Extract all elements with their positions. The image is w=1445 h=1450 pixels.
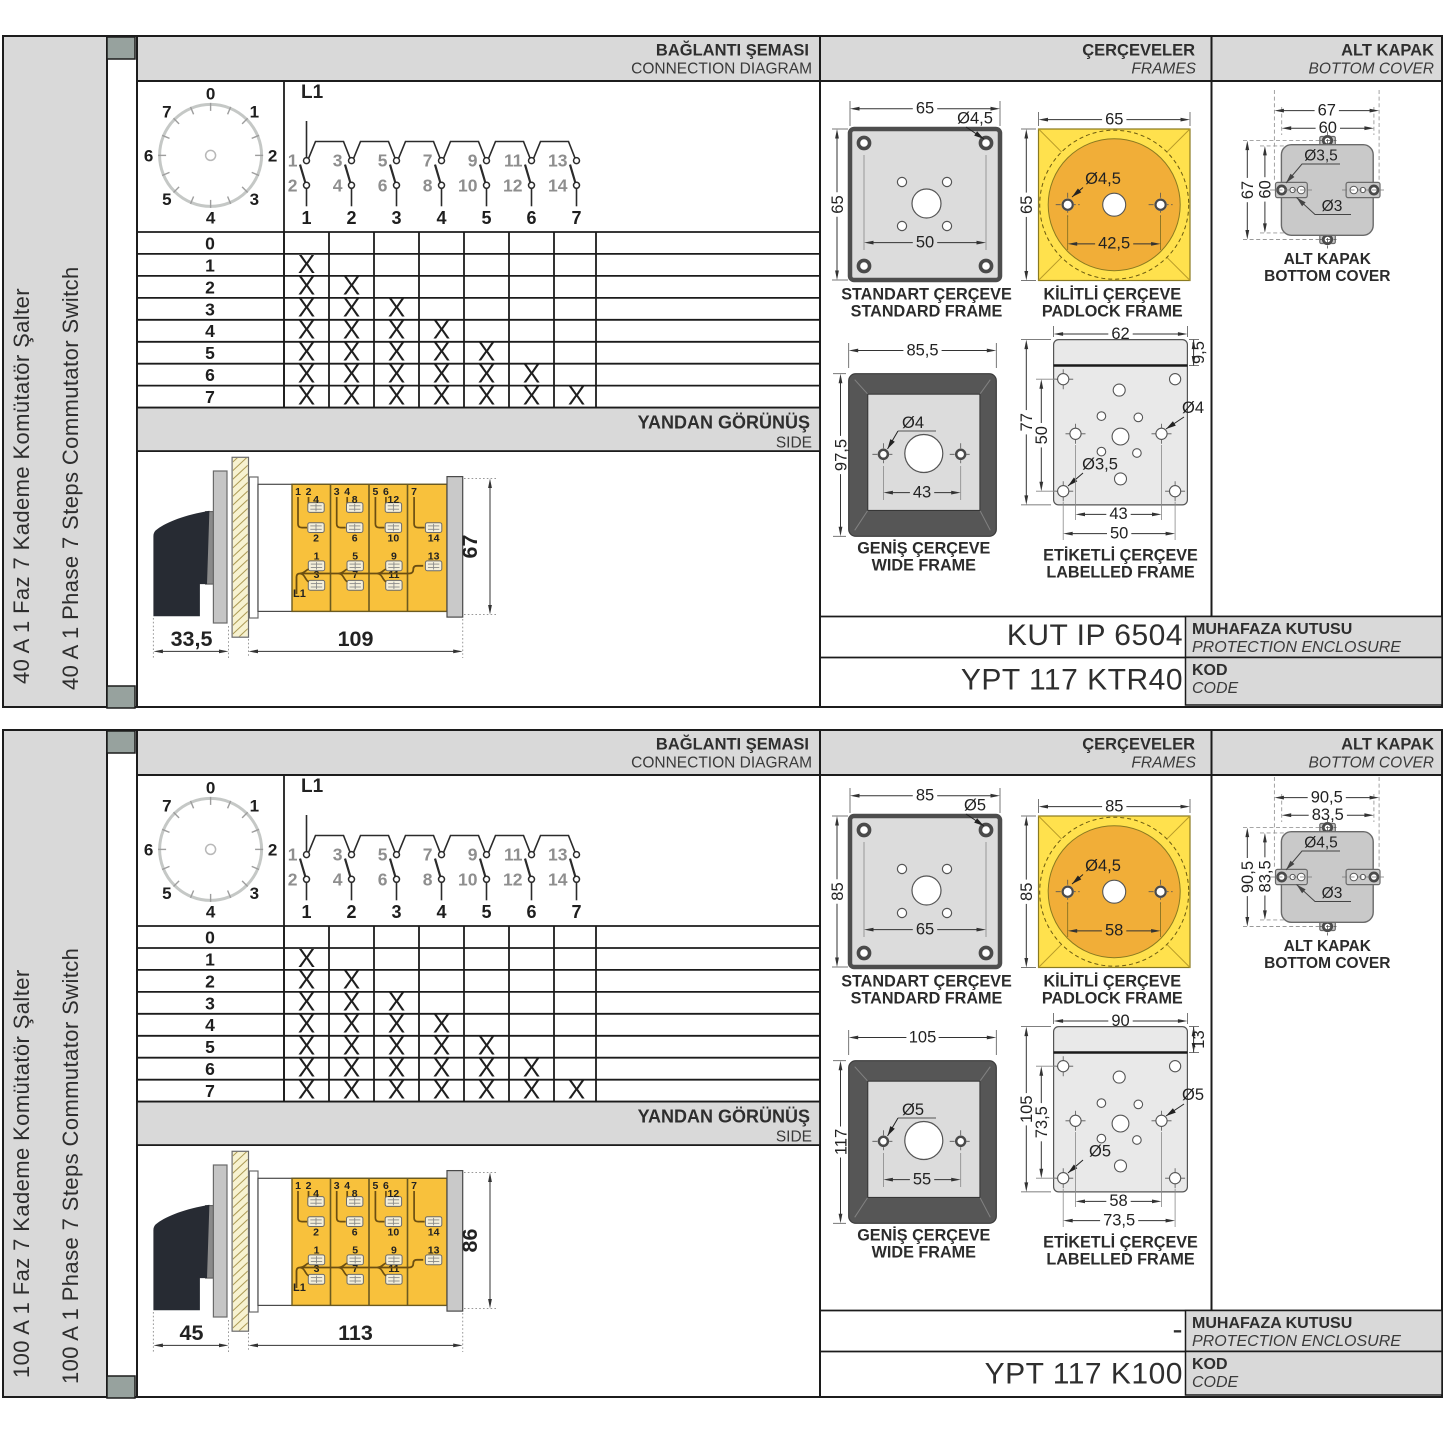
svg-text:4: 4 bbox=[205, 1015, 215, 1035]
svg-text:5: 5 bbox=[205, 1037, 215, 1057]
svg-text:12: 12 bbox=[388, 494, 400, 506]
svg-text:100 A 1 Faz 7 Kademe Komütatör: 100 A 1 Faz 7 Kademe Komütatör Şalter bbox=[9, 969, 34, 1378]
svg-text:9,5: 9,5 bbox=[1190, 341, 1208, 364]
svg-text:85: 85 bbox=[916, 787, 934, 805]
svg-text:Ø5: Ø5 bbox=[1182, 1086, 1204, 1104]
svg-text:CONNECTION DIAGRAM: CONNECTION DIAGRAM bbox=[631, 755, 812, 772]
svg-text:85: 85 bbox=[829, 882, 847, 900]
svg-text:-: - bbox=[1173, 1313, 1184, 1346]
svg-text:1: 1 bbox=[295, 1180, 301, 1192]
svg-text:1: 1 bbox=[314, 1245, 320, 1257]
svg-text:Ø3: Ø3 bbox=[1322, 198, 1343, 215]
svg-text:L1: L1 bbox=[301, 82, 324, 103]
svg-text:85: 85 bbox=[1018, 883, 1036, 901]
svg-text:5: 5 bbox=[481, 208, 491, 228]
svg-text:Ø3: Ø3 bbox=[1322, 885, 1343, 902]
svg-text:14: 14 bbox=[428, 533, 440, 545]
svg-text:CODE: CODE bbox=[1192, 680, 1239, 697]
svg-text:PADLOCK FRAME: PADLOCK FRAME bbox=[1042, 303, 1183, 321]
svg-text:Ø4,5: Ø4,5 bbox=[1085, 170, 1121, 188]
svg-text:109: 109 bbox=[338, 627, 374, 651]
svg-text:YANDAN GÖRÜNÜŞ: YANDAN GÖRÜNÜŞ bbox=[638, 413, 810, 433]
svg-text:MUHAFAZA KUTUSU: MUHAFAZA KUTUSU bbox=[1192, 1315, 1352, 1332]
svg-text:Ø5: Ø5 bbox=[902, 1101, 924, 1119]
svg-text:4: 4 bbox=[206, 208, 216, 227]
svg-text:X: X bbox=[433, 1075, 450, 1105]
svg-text:9: 9 bbox=[468, 151, 478, 171]
svg-text:PROTECTION ENCLOSURE: PROTECTION ENCLOSURE bbox=[1192, 1333, 1401, 1350]
svg-text:X: X bbox=[478, 1075, 495, 1105]
svg-text:6: 6 bbox=[352, 533, 358, 545]
svg-text:4: 4 bbox=[333, 869, 343, 889]
svg-text:5: 5 bbox=[352, 551, 358, 563]
svg-text:4: 4 bbox=[436, 208, 446, 228]
svg-text:3: 3 bbox=[333, 151, 343, 171]
svg-text:X: X bbox=[478, 380, 495, 410]
svg-text:Ø3,5: Ø3,5 bbox=[1304, 148, 1338, 165]
svg-text:1: 1 bbox=[288, 151, 298, 171]
svg-text:ALT KAPAK: ALT KAPAK bbox=[1284, 938, 1372, 955]
svg-text:85: 85 bbox=[1105, 797, 1123, 815]
svg-text:10: 10 bbox=[458, 175, 478, 195]
svg-text:X: X bbox=[343, 380, 360, 410]
svg-text:6: 6 bbox=[144, 146, 153, 165]
svg-text:90: 90 bbox=[1111, 1012, 1129, 1030]
svg-text:58: 58 bbox=[1109, 1192, 1127, 1210]
svg-text:Ø4: Ø4 bbox=[902, 414, 924, 432]
svg-text:X: X bbox=[388, 1075, 405, 1105]
svg-text:13: 13 bbox=[548, 151, 568, 171]
svg-text:STANDARD FRAME: STANDARD FRAME bbox=[851, 303, 1003, 321]
svg-text:KİLİTLİ ÇERÇEVE: KİLİTLİ ÇERÇEVE bbox=[1043, 286, 1181, 304]
svg-text:62: 62 bbox=[1111, 325, 1129, 343]
svg-text:YPT 117 K100: YPT 117 K100 bbox=[985, 1358, 1183, 1391]
svg-text:4: 4 bbox=[313, 1188, 319, 1200]
svg-text:14: 14 bbox=[428, 1227, 440, 1239]
svg-text:7: 7 bbox=[411, 486, 417, 498]
svg-text:11: 11 bbox=[388, 569, 399, 581]
svg-text:6: 6 bbox=[352, 1227, 358, 1239]
svg-text:67: 67 bbox=[458, 535, 482, 559]
svg-text:13: 13 bbox=[428, 551, 440, 563]
svg-text:7: 7 bbox=[352, 569, 358, 581]
svg-text:11: 11 bbox=[388, 1263, 399, 1275]
svg-text:2: 2 bbox=[313, 1227, 319, 1239]
svg-text:4: 4 bbox=[333, 175, 343, 195]
svg-text:50: 50 bbox=[1110, 524, 1128, 542]
svg-text:45: 45 bbox=[180, 1321, 204, 1345]
svg-text:5: 5 bbox=[162, 884, 171, 903]
svg-text:2: 2 bbox=[268, 146, 277, 165]
svg-text:40 A 1 Phase 7 Steps Commutato: 40 A 1 Phase 7 Steps Commutator Switch bbox=[58, 266, 83, 690]
svg-text:1: 1 bbox=[301, 902, 311, 922]
svg-text:7: 7 bbox=[162, 797, 171, 816]
svg-text:85,5: 85,5 bbox=[906, 341, 938, 359]
svg-text:13: 13 bbox=[428, 1245, 440, 1257]
svg-text:BAĞLANTI ŞEMASI: BAĞLANTI ŞEMASI bbox=[656, 41, 809, 60]
svg-text:9: 9 bbox=[391, 551, 397, 563]
svg-text:YANDAN GÖRÜNÜŞ: YANDAN GÖRÜNÜŞ bbox=[638, 1107, 810, 1127]
svg-text:3: 3 bbox=[314, 569, 320, 581]
svg-text:1: 1 bbox=[250, 797, 259, 816]
svg-text:WIDE FRAME: WIDE FRAME bbox=[872, 557, 977, 575]
svg-text:3: 3 bbox=[333, 845, 343, 865]
svg-text:50: 50 bbox=[916, 233, 934, 251]
svg-text:ÇERÇEVELER: ÇERÇEVELER bbox=[1082, 42, 1195, 60]
svg-text:12: 12 bbox=[388, 1188, 400, 1200]
svg-text:4: 4 bbox=[313, 494, 319, 506]
svg-text:10: 10 bbox=[388, 1227, 400, 1239]
svg-text:X: X bbox=[343, 1075, 360, 1105]
svg-text:5: 5 bbox=[481, 902, 491, 922]
svg-text:33,5: 33,5 bbox=[171, 627, 213, 651]
svg-text:LABELLED FRAME: LABELLED FRAME bbox=[1046, 564, 1195, 582]
svg-text:7: 7 bbox=[571, 902, 581, 922]
svg-text:L1: L1 bbox=[293, 588, 306, 600]
svg-text:STANDART ÇERÇEVE: STANDART ÇERÇEVE bbox=[841, 286, 1012, 304]
svg-text:13: 13 bbox=[548, 845, 568, 865]
svg-text:Ø5: Ø5 bbox=[964, 797, 986, 815]
svg-text:YPT 117 KTR40: YPT 117 KTR40 bbox=[961, 664, 1183, 697]
svg-text:90,5: 90,5 bbox=[1239, 861, 1257, 893]
svg-text:2: 2 bbox=[306, 486, 312, 498]
svg-text:BAĞLANTI ŞEMASI: BAĞLANTI ŞEMASI bbox=[656, 735, 809, 754]
svg-text:5: 5 bbox=[378, 151, 388, 171]
svg-text:65: 65 bbox=[916, 100, 934, 118]
svg-text:LABELLED FRAME: LABELLED FRAME bbox=[1046, 1251, 1195, 1269]
svg-text:5: 5 bbox=[205, 343, 215, 363]
svg-text:100 A 1 Phase 7 Steps Commutat: 100 A 1 Phase 7 Steps Commutator Switch bbox=[58, 948, 83, 1384]
svg-text:6: 6 bbox=[205, 1059, 215, 1079]
svg-text:3: 3 bbox=[391, 902, 401, 922]
svg-text:86: 86 bbox=[458, 1229, 482, 1253]
svg-text:8: 8 bbox=[352, 1188, 358, 1200]
svg-text:4: 4 bbox=[344, 486, 350, 498]
svg-text:6: 6 bbox=[378, 175, 388, 195]
svg-text:97,5: 97,5 bbox=[832, 439, 850, 471]
svg-text:11: 11 bbox=[504, 845, 523, 865]
svg-text:X: X bbox=[388, 380, 405, 410]
svg-text:2: 2 bbox=[288, 869, 298, 889]
svg-text:0: 0 bbox=[205, 927, 215, 947]
svg-text:X: X bbox=[523, 380, 540, 410]
svg-text:1: 1 bbox=[205, 255, 215, 275]
svg-text:7: 7 bbox=[205, 1081, 215, 1101]
svg-text:KOD: KOD bbox=[1192, 662, 1228, 679]
svg-text:13: 13 bbox=[1190, 1030, 1208, 1048]
svg-text:6: 6 bbox=[526, 902, 536, 922]
svg-text:ÇERÇEVELER: ÇERÇEVELER bbox=[1082, 736, 1195, 754]
svg-text:14: 14 bbox=[548, 869, 568, 889]
svg-text:50: 50 bbox=[1033, 426, 1051, 444]
svg-text:1: 1 bbox=[295, 486, 301, 498]
svg-text:117: 117 bbox=[832, 1129, 850, 1155]
svg-text:65: 65 bbox=[916, 920, 934, 938]
svg-text:1: 1 bbox=[205, 949, 215, 969]
svg-text:4: 4 bbox=[344, 1180, 350, 1192]
svg-text:12: 12 bbox=[503, 869, 523, 889]
svg-text:Ø4,5: Ø4,5 bbox=[1085, 857, 1121, 875]
svg-text:6: 6 bbox=[144, 840, 153, 859]
svg-text:0: 0 bbox=[206, 84, 215, 103]
svg-text:X: X bbox=[523, 1075, 540, 1105]
svg-text:KUT IP 6504: KUT IP 6504 bbox=[1007, 619, 1183, 652]
svg-text:3: 3 bbox=[250, 884, 259, 903]
svg-text:43: 43 bbox=[913, 483, 931, 501]
svg-text:X: X bbox=[568, 380, 585, 410]
svg-text:KOD: KOD bbox=[1192, 1356, 1228, 1373]
svg-text:2: 2 bbox=[205, 277, 215, 297]
svg-text:1: 1 bbox=[288, 845, 298, 865]
svg-text:5: 5 bbox=[378, 845, 388, 865]
svg-text:113: 113 bbox=[338, 1321, 373, 1345]
svg-text:STANDARD FRAME: STANDARD FRAME bbox=[851, 990, 1003, 1008]
svg-text:4: 4 bbox=[436, 902, 446, 922]
svg-text:SIDE: SIDE bbox=[776, 435, 812, 452]
svg-text:90,5: 90,5 bbox=[1311, 788, 1343, 806]
svg-text:73,5: 73,5 bbox=[1103, 1211, 1135, 1229]
svg-text:SIDE: SIDE bbox=[776, 1129, 812, 1146]
svg-text:CODE: CODE bbox=[1192, 1374, 1239, 1391]
svg-text:7: 7 bbox=[411, 1180, 417, 1192]
svg-text:11: 11 bbox=[504, 151, 523, 171]
svg-text:KİLİTLİ ÇERÇEVE: KİLİTLİ ÇERÇEVE bbox=[1043, 973, 1181, 991]
svg-text:4: 4 bbox=[206, 902, 216, 921]
svg-text:40 A 1 Faz 7 Kademe Komütatör: 40 A 1 Faz 7 Kademe Komütatör Şalter bbox=[9, 288, 34, 684]
svg-text:3: 3 bbox=[391, 208, 401, 228]
svg-text:BOTTOM COVER: BOTTOM COVER bbox=[1264, 268, 1390, 285]
svg-text:60: 60 bbox=[1257, 180, 1275, 198]
svg-text:MUHAFAZA KUTUSU: MUHAFAZA KUTUSU bbox=[1192, 621, 1352, 638]
svg-text:5: 5 bbox=[372, 486, 378, 498]
svg-text:ALT KAPAK: ALT KAPAK bbox=[1341, 42, 1434, 60]
svg-text:ETİKETLİ ÇERÇEVE: ETİKETLİ ÇERÇEVE bbox=[1043, 1234, 1198, 1252]
svg-text:3: 3 bbox=[205, 993, 215, 1013]
svg-text:2: 2 bbox=[288, 175, 298, 195]
svg-text:58: 58 bbox=[1105, 922, 1123, 940]
svg-text:3: 3 bbox=[314, 1263, 320, 1275]
svg-text:7: 7 bbox=[162, 103, 171, 122]
svg-text:BOTTOM COVER: BOTTOM COVER bbox=[1309, 61, 1434, 78]
svg-text:8: 8 bbox=[352, 494, 358, 506]
svg-text:43: 43 bbox=[1109, 505, 1127, 523]
svg-text:6: 6 bbox=[205, 365, 215, 385]
svg-text:STANDART ÇERÇEVE: STANDART ÇERÇEVE bbox=[841, 973, 1012, 991]
svg-text:42,5: 42,5 bbox=[1098, 235, 1130, 253]
svg-text:1: 1 bbox=[314, 551, 320, 563]
svg-text:2: 2 bbox=[268, 840, 277, 859]
svg-text:X: X bbox=[568, 1075, 585, 1105]
svg-text:1: 1 bbox=[301, 208, 311, 228]
svg-text:3: 3 bbox=[334, 1180, 340, 1192]
svg-text:6: 6 bbox=[526, 208, 536, 228]
svg-text:10: 10 bbox=[388, 533, 400, 545]
svg-text:60: 60 bbox=[1319, 119, 1337, 137]
svg-text:4: 4 bbox=[205, 321, 215, 341]
svg-text:7: 7 bbox=[423, 151, 433, 171]
svg-text:73,5: 73,5 bbox=[1033, 1106, 1051, 1138]
svg-text:Ø4,5: Ø4,5 bbox=[957, 110, 993, 128]
svg-text:PADLOCK FRAME: PADLOCK FRAME bbox=[1042, 990, 1183, 1008]
svg-text:BOTTOM COVER: BOTTOM COVER bbox=[1309, 755, 1434, 772]
svg-text:8: 8 bbox=[423, 869, 433, 889]
svg-text:14: 14 bbox=[548, 175, 568, 195]
svg-text:ALT KAPAK: ALT KAPAK bbox=[1341, 736, 1434, 754]
svg-text:X: X bbox=[298, 380, 315, 410]
svg-text:2: 2 bbox=[346, 902, 356, 922]
svg-text:L1: L1 bbox=[293, 1282, 306, 1294]
svg-text:55: 55 bbox=[913, 1170, 931, 1188]
svg-text:7: 7 bbox=[352, 1263, 358, 1275]
svg-text:5: 5 bbox=[372, 1180, 378, 1192]
svg-text:83,5: 83,5 bbox=[1257, 860, 1275, 892]
svg-text:2: 2 bbox=[306, 1180, 312, 1192]
svg-text:65: 65 bbox=[1105, 110, 1123, 128]
svg-text:PROTECTION ENCLOSURE: PROTECTION ENCLOSURE bbox=[1192, 639, 1401, 656]
svg-text:9: 9 bbox=[391, 1245, 397, 1257]
svg-text:65: 65 bbox=[1018, 196, 1036, 214]
svg-text:GENİŞ ÇERÇEVE: GENİŞ ÇERÇEVE bbox=[857, 540, 990, 558]
svg-text:5: 5 bbox=[162, 190, 171, 209]
svg-text:X: X bbox=[298, 1075, 315, 1105]
svg-text:7: 7 bbox=[423, 845, 433, 865]
svg-text:12: 12 bbox=[503, 175, 523, 195]
svg-text:ALT KAPAK: ALT KAPAK bbox=[1284, 251, 1372, 268]
svg-text:1: 1 bbox=[250, 103, 259, 122]
svg-text:GENİŞ ÇERÇEVE: GENİŞ ÇERÇEVE bbox=[857, 1227, 990, 1245]
svg-text:3: 3 bbox=[205, 299, 215, 319]
svg-text:2: 2 bbox=[346, 208, 356, 228]
svg-text:2: 2 bbox=[313, 533, 319, 545]
svg-text:2: 2 bbox=[205, 971, 215, 991]
svg-text:67: 67 bbox=[1239, 181, 1257, 199]
svg-text:X: X bbox=[433, 380, 450, 410]
svg-text:65: 65 bbox=[829, 195, 847, 213]
svg-text:67: 67 bbox=[1318, 101, 1336, 119]
svg-text:9: 9 bbox=[468, 845, 478, 865]
svg-text:ETİKETLİ ÇERÇEVE: ETİKETLİ ÇERÇEVE bbox=[1043, 547, 1198, 565]
svg-text:105: 105 bbox=[909, 1028, 937, 1046]
svg-text:FRAMES: FRAMES bbox=[1131, 755, 1196, 772]
svg-text:WIDE FRAME: WIDE FRAME bbox=[872, 1244, 977, 1262]
svg-text:0: 0 bbox=[206, 778, 215, 797]
svg-text:6: 6 bbox=[378, 869, 388, 889]
svg-text:3: 3 bbox=[334, 486, 340, 498]
svg-text:7: 7 bbox=[205, 387, 215, 407]
svg-text:83,5: 83,5 bbox=[1312, 806, 1344, 824]
svg-text:L1: L1 bbox=[301, 776, 324, 797]
svg-text:FRAMES: FRAMES bbox=[1131, 61, 1196, 78]
svg-text:Ø5: Ø5 bbox=[1089, 1143, 1111, 1161]
svg-text:BOTTOM COVER: BOTTOM COVER bbox=[1264, 955, 1390, 972]
svg-text:5: 5 bbox=[352, 1245, 358, 1257]
svg-text:3: 3 bbox=[250, 190, 259, 209]
svg-text:0: 0 bbox=[205, 233, 215, 253]
svg-text:7: 7 bbox=[571, 208, 581, 228]
svg-text:Ø4,5: Ø4,5 bbox=[1304, 835, 1338, 852]
svg-text:8: 8 bbox=[423, 175, 433, 195]
svg-text:10: 10 bbox=[458, 869, 478, 889]
svg-text:Ø4: Ø4 bbox=[1182, 399, 1204, 417]
svg-text:Ø3,5: Ø3,5 bbox=[1082, 456, 1118, 474]
svg-text:CONNECTION DIAGRAM: CONNECTION DIAGRAM bbox=[631, 61, 812, 78]
